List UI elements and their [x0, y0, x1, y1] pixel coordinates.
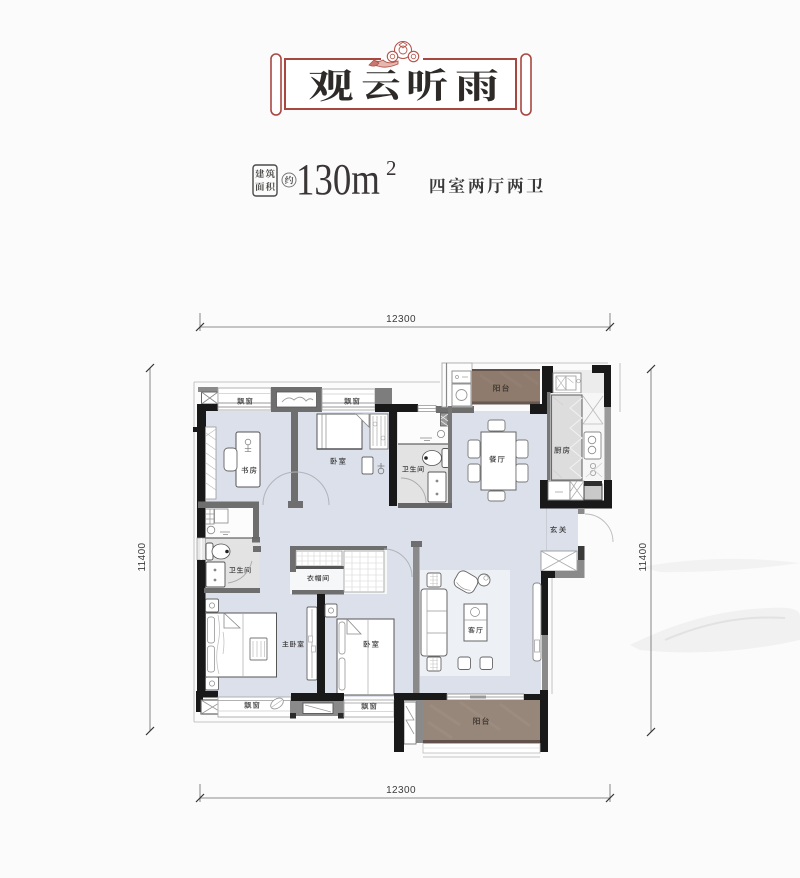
svg-text:11400: 11400 — [638, 542, 649, 571]
svg-text:12300: 12300 — [386, 314, 416, 325]
svg-text:130m: 130m — [296, 155, 380, 204]
svg-text:2: 2 — [386, 156, 397, 180]
svg-text:11400: 11400 — [137, 542, 148, 571]
svg-text:12300: 12300 — [386, 785, 416, 796]
